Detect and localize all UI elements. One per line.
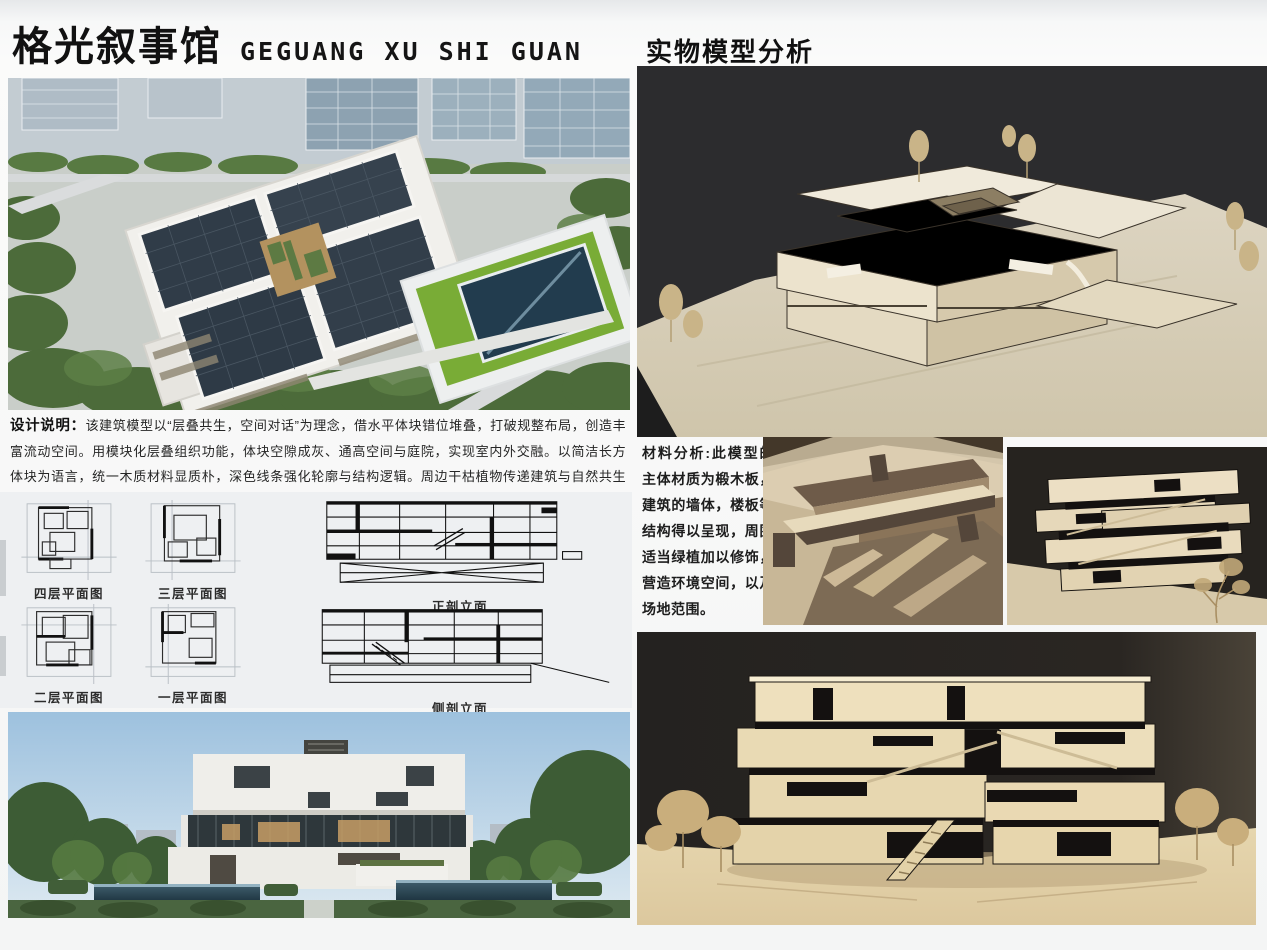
facade-rendering-illustration [8,712,630,918]
floor-plan-drawing-1f [143,604,243,684]
floor-plan-figure-3f: 三层平面图 [138,500,248,602]
model-corner-illustration [1007,447,1267,625]
model-courtyard-illustration [763,437,1003,625]
project-title: 格光叙事馆 GEGUANG XU SHI GUAN [12,27,583,67]
board-edge-mark [0,636,6,676]
model-overview-illustration [637,66,1267,437]
facade-rendering-photo [8,712,630,918]
floor-plan-label-3f: 三层平面图 [138,583,248,602]
board-edge-mark [0,540,6,596]
floor-plan-figure-4f: 四层平面图 [14,500,124,602]
model-corner-photo [1007,447,1267,625]
floor-plan-label-1f: 一层平面图 [138,687,248,706]
design-description-label: 设计说明： [10,418,86,434]
material-analysis-text: 此模型的主体材质为椴木板，建筑的墙体，楼板等结构得以呈现，周围适当绿植加以修饰，… [642,445,774,617]
floor-plan-label-4f: 四层平面图 [14,583,124,602]
section-drawing-side [302,602,618,690]
section-drawing-front [305,496,615,588]
floor-plan-label-2f: 二层平面图 [14,687,124,706]
model-overview-photo [637,66,1267,437]
drawings-panel: 四层平面图 三层平面图 [0,492,632,708]
floor-plan-figure-1f: 一层平面图 [138,604,248,706]
project-title-pinyin: GEGUANG XU SHI GUAN [240,38,583,67]
section-figure-side: 侧剖立面 [300,602,620,717]
presentation-board: 格光叙事馆 GEGUANG XU SHI GUAN [0,0,1267,950]
aerial-rendering-photo [8,78,630,410]
model-elevation-illustration [637,632,1256,925]
model-courtyard-photo [763,437,1003,625]
section-figure-front: 正剖立面 [300,496,620,615]
floor-plan-drawing-4f [19,500,119,580]
project-title-chinese: 格光叙事馆 [12,27,222,67]
aerial-rendering-illustration [8,78,630,410]
floor-plan-figure-2f: 二层平面图 [14,604,124,706]
material-analysis-label: 材料分析: [642,445,711,461]
model-elevation-photo [637,632,1256,925]
floor-plan-drawing-3f [143,500,243,580]
model-analysis-title: 实物模型分析 [646,32,814,69]
material-analysis: 材料分析:此模型的主体材质为椴木板，建筑的墙体，楼板等结构得以呈现，周围适当绿植… [642,440,774,622]
floor-plan-drawing-2f [19,604,119,684]
